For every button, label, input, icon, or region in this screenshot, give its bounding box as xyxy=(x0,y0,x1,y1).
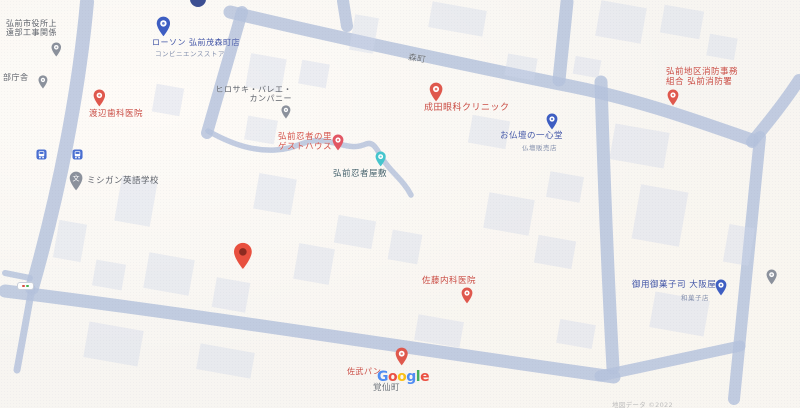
road-3 xyxy=(207,12,242,133)
building-block xyxy=(632,184,689,246)
sato-internal-medicine-label: 佐藤内科医院 xyxy=(422,277,476,287)
narita-eye-clinic-label: 成田眼科クリニック xyxy=(424,103,510,113)
bus-stop-icon-1[interactable] xyxy=(72,145,83,156)
isshindo-butsudan-sublabel: 仏壇販売店 xyxy=(522,142,557,152)
google-logo-letter: o xyxy=(388,369,397,385)
building-block xyxy=(143,252,195,295)
hirosaki-fire-station-label: 弘前地区消防事務組合 弘前消防署 xyxy=(666,68,738,87)
google-logo-letter: g xyxy=(406,369,416,385)
unlabeled-poi-pin[interactable] xyxy=(766,269,777,289)
chosha-pin[interactable] xyxy=(38,74,48,93)
osakaya-wagashi-sublabel: 和菓子店 xyxy=(681,292,709,302)
svg-text:文: 文 xyxy=(72,174,79,183)
isshindo-butsudan-label: お仏壇の一心堂 xyxy=(500,132,563,142)
road-8 xyxy=(601,82,613,368)
road-2 xyxy=(5,273,30,278)
sabu-bakery-pin[interactable] xyxy=(395,347,408,370)
hirosaki-ninja-house-label: 弘前忍者屋敷 xyxy=(333,170,387,180)
kakusencho-town-label-label: 覚仙町 xyxy=(373,384,400,394)
google-logo-letter: G xyxy=(377,369,388,385)
road-6 xyxy=(343,1,347,26)
road-7 xyxy=(559,2,567,80)
hirosaki-fire-station-pin[interactable] xyxy=(667,89,679,110)
osakaya-wagashi-label: 御用御菓子司 大阪屋 xyxy=(632,281,716,291)
sato-internal-medicine-pin[interactable] xyxy=(461,287,473,308)
road-9 xyxy=(734,137,760,399)
building-block xyxy=(546,171,584,203)
lawson-hirosaki-shigemori-label: ローソン 弘前茂森町店 xyxy=(152,39,240,48)
ninja-guesthouse-label: 弘前忍者の里ゲストハウス xyxy=(278,133,332,152)
building-block xyxy=(706,34,737,61)
watanabe-dental-clinic-pin[interactable] xyxy=(93,89,106,111)
construction-office-pin[interactable] xyxy=(51,42,62,61)
building-block xyxy=(298,60,330,88)
transit-stop-icon xyxy=(17,282,34,290)
map-attribution: 地図データ ©2022 xyxy=(612,399,673,408)
road-11 xyxy=(600,346,740,376)
google-logo-watermark: Google xyxy=(377,369,429,385)
main-location-marker-pin[interactable] xyxy=(233,242,253,274)
building-block xyxy=(293,243,335,285)
hirosaki-ninja-house-pin[interactable] xyxy=(375,151,386,171)
ninja-guesthouse-pin[interactable] xyxy=(332,134,344,155)
google-logo-letter: o xyxy=(397,369,406,385)
michigan-english-school-label: ミシガン英語学校 xyxy=(87,177,159,187)
chosha-label: 部庁舎 xyxy=(3,74,29,83)
building-block xyxy=(253,173,297,215)
building-block xyxy=(212,277,251,312)
building-block xyxy=(92,260,126,291)
google-logo-letter: e xyxy=(420,369,429,385)
building-block xyxy=(152,84,184,116)
osakaya-wagashi-pin[interactable] xyxy=(715,279,727,300)
building-block xyxy=(483,192,535,235)
michigan-english-school-pin[interactable]: 文 xyxy=(69,171,83,195)
building-block xyxy=(244,116,278,145)
building-block xyxy=(388,230,423,265)
bus-stop-icon-0[interactable] xyxy=(36,145,47,156)
watanabe-dental-clinic-label: 渡辺歯科医院 xyxy=(89,110,143,120)
hirosaki-ballet-company-pin[interactable] xyxy=(281,104,291,123)
lawson-hirosaki-shigemori-sublabel: コンビニエンスストア xyxy=(155,48,225,58)
construction-office-label: 弘前市役所上遠部工事関係 xyxy=(6,20,57,38)
building-block xyxy=(595,0,647,43)
map-canvas[interactable]: 弘前市役所上遠部工事関係部庁舎ローソン 弘前茂森町店コンビニエンスストア渡辺歯科… xyxy=(0,0,800,408)
hirosaki-ballet-company-label: ヒロサキ・バレエ・カンパニー xyxy=(215,86,292,104)
